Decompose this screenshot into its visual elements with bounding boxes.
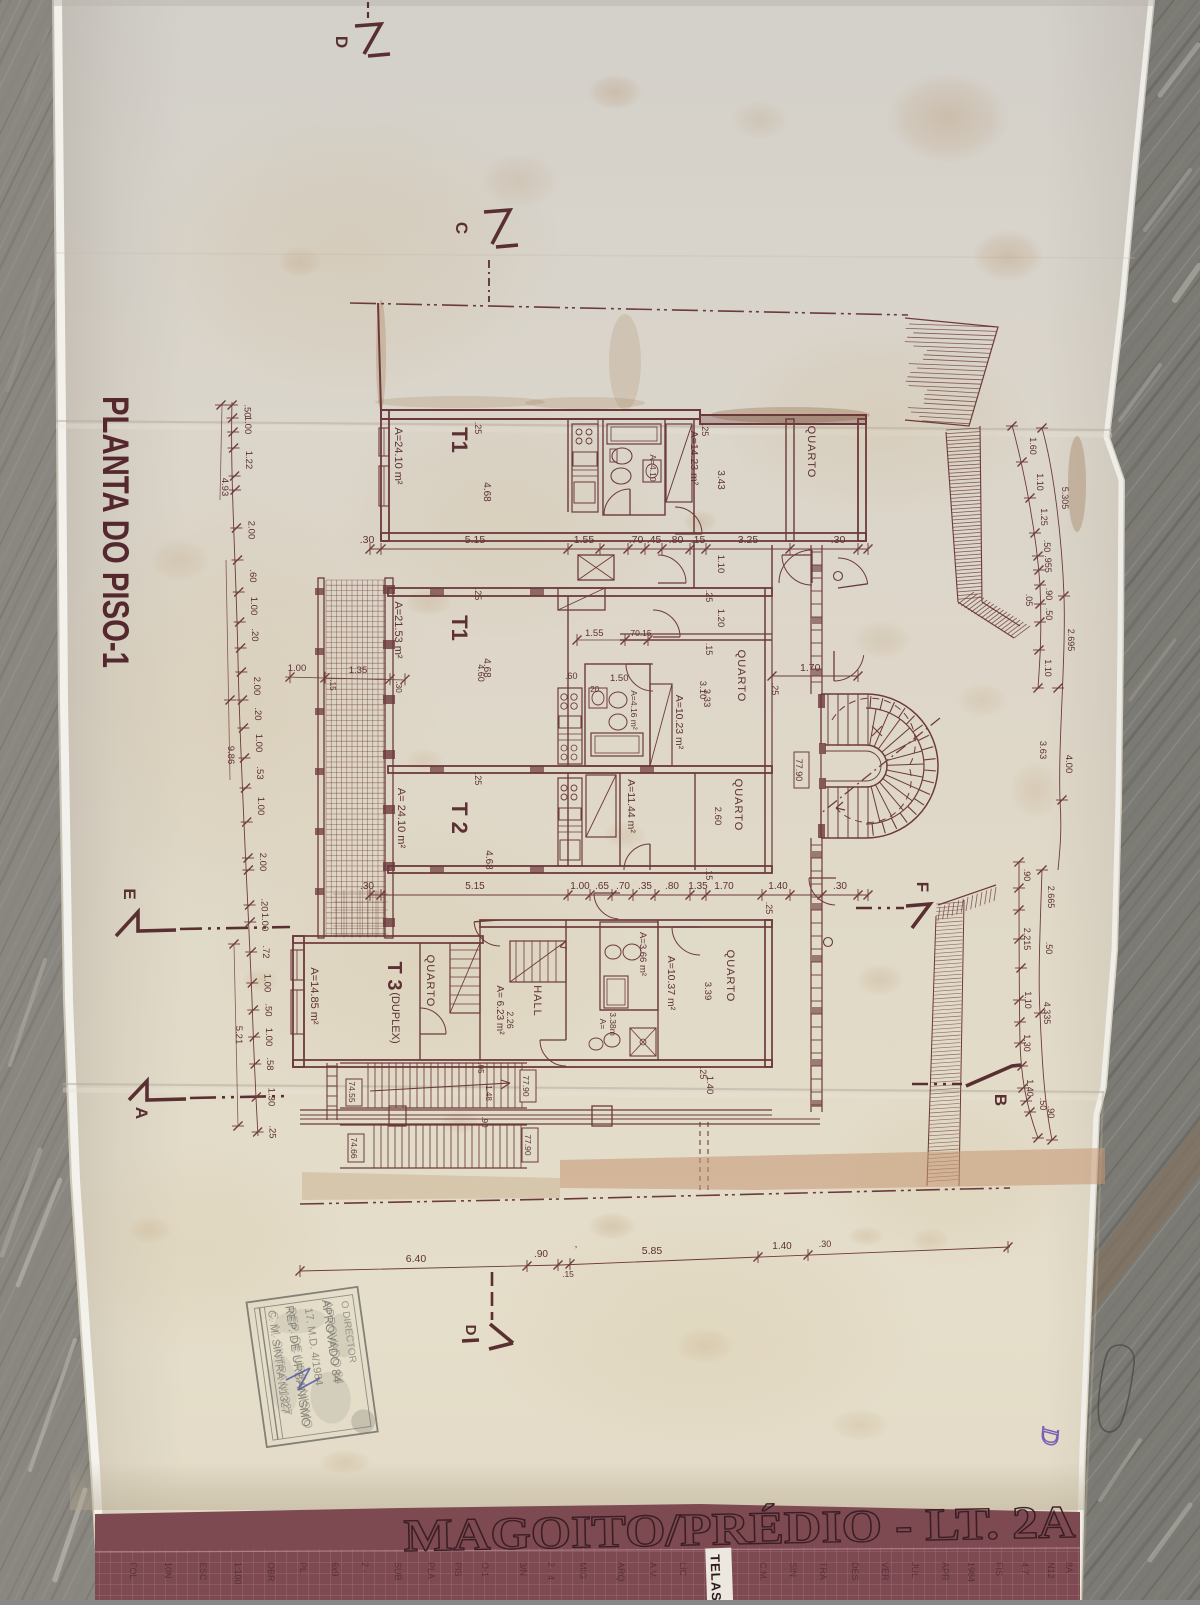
svg-text:.90: .90 [534,1249,548,1260]
svg-text:1984: 1984 [966,1562,976,1582]
svg-text:1.00: 1.00 [242,416,253,435]
svg-text:.50: .50 [262,1003,273,1016]
svg-text:.25: .25 [473,422,483,435]
svg-text:A.V.: A.V. [648,1562,658,1578]
svg-text:O-1: O-1 [480,1562,490,1577]
svg-text:1.48: 1.48 [484,1085,493,1101]
svg-text:.25: .25 [770,683,780,696]
svg-text:.90: .90 [1022,869,1032,882]
svg-text:1.00: 1.00 [288,663,307,674]
svg-text:.35: .35 [638,881,652,892]
svg-text:.955: .955 [1043,555,1053,573]
svg-text:5.305: 5.305 [1060,487,1070,510]
svg-text:2.26: 2.26 [505,1011,515,1029]
svg-text:.50: .50 [1044,942,1054,955]
svg-text:3.33: 3.33 [701,689,712,708]
svg-text:FIS: FIS [994,1562,1004,1576]
svg-text:PLA: PLA [426,1562,436,1579]
svg-text:4.7: 4.7 [1020,1562,1030,1575]
svg-text:.95: .95 [476,1062,485,1074]
svg-text:.45: .45 [647,534,662,546]
svg-text:8A: 8A [1064,1562,1074,1573]
svg-text:.20: .20 [259,898,270,911]
svg-text:HALL: HALL [531,985,543,1017]
svg-text:1.00: 1.00 [261,974,272,993]
svg-text:1.25: 1.25 [1039,508,1049,526]
svg-text:2.00: 2.00 [251,677,262,696]
svg-text:1.55: 1.55 [574,534,595,546]
svg-text:1.30: 1.30 [1022,1034,1032,1052]
svg-text:9.86: 9.86 [225,746,236,765]
svg-text:APR: APR [940,1562,950,1581]
svg-text:A=11.44 m²: A=11.44 m² [625,779,637,833]
svg-text:1.00: 1.00 [255,797,266,816]
svg-text:3.63: 3.63 [1037,741,1048,760]
svg-text:2.00: 2.00 [246,521,257,540]
svg-text:SUB: SUB [393,1562,403,1581]
svg-text:.53: .53 [254,766,265,779]
svg-text:6x9: 6x9 [330,1562,340,1577]
svg-text:.25: .25 [473,773,483,786]
svg-text:.20: .20 [588,685,600,694]
svg-text:77.90: 77.90 [523,1134,533,1156]
svg-text:1.10: 1.10 [1023,991,1033,1009]
svg-text:.25: .25 [473,588,483,601]
svg-text:.25: .25 [700,424,710,437]
svg-text:2.665: 2.665 [1046,886,1056,909]
svg-text:DES: DES [850,1562,860,1581]
svg-text:1.40: 1.40 [704,1076,715,1095]
svg-text:2.00: 2.00 [257,853,268,872]
svg-text:QUARTO: QUARTO [424,955,436,1008]
svg-text:.50: .50 [1042,540,1052,553]
svg-text:.90: .90 [480,1116,489,1128]
svg-text:4.68: 4.68 [481,482,492,502]
svg-text:3.25: 3.25 [738,534,759,546]
svg-text:T1: T1 [447,615,472,641]
svg-text:JUL: JUL [910,1562,920,1578]
svg-text:TELAS: TELAS [707,1554,724,1600]
svg-text:.30: .30 [360,534,375,546]
svg-text:A=4.10: A=4.10 [648,454,658,481]
svg-text:1.00: 1.00 [570,881,590,892]
svg-text:74.55: 74.55 [347,1081,357,1103]
svg-text:.70: .70 [629,534,644,546]
svg-text:2.215: 2.215 [1022,928,1032,951]
svg-text:.20: .20 [249,628,260,641]
svg-text:.58: .58 [264,1057,275,1070]
svg-text:C: C [452,222,471,234]
svg-text:QUARTO: QUARTO [805,426,817,479]
svg-text:LIC: LIC [678,1562,688,1577]
svg-text:A=21.53 m²: A=21.53 m² [392,601,404,659]
svg-text:1.40: 1.40 [772,1241,792,1252]
svg-text:(DUPLEX): (DUPLEX) [389,992,401,1043]
svg-text:4.00: 4.00 [1063,755,1074,774]
svg-text:3.39: 3.39 [702,982,713,1001]
svg-text:1.35: 1.35 [688,881,708,892]
svg-text:OBR: OBR [266,1562,276,1582]
svg-text:1.00: 1.00 [259,913,270,932]
svg-text:1.10: 1.10 [1043,659,1053,677]
svg-text:4.68: 4.68 [483,850,494,870]
svg-text:PIS: PIS [453,1562,463,1577]
svg-text:PLANTA DO PISO-1: PLANTA DO PISO-1 [95,396,136,668]
svg-text:.30: .30 [360,881,374,892]
svg-text:N12: N12 [1046,1562,1056,1579]
svg-text:B: B [991,1094,1010,1106]
svg-text:FOL: FOL [128,1562,138,1580]
svg-text:A=10.23 m²: A=10.23 m² [673,695,685,750]
svg-text:.25: .25 [267,1125,278,1138]
svg-text:1.10: 1.10 [1035,473,1045,491]
svg-text:.70.15: .70.15 [628,628,652,638]
svg-text:1.40: 1.40 [768,881,788,892]
svg-text:A=4.16 m²: A=4.16 m² [629,690,639,730]
svg-text:T 3: T 3 [383,962,405,991]
svg-text:T 2: T 2 [447,802,472,834]
svg-text:1.10: 1.10 [715,555,726,574]
svg-text:5.85: 5.85 [642,1245,663,1257]
svg-text:QUARTO: QUARTO [724,950,736,1003]
svg-text:1.50: 1.50 [610,673,629,684]
svg-text:’: ’ [575,1245,577,1256]
svg-text:.30: .30 [833,881,847,892]
svg-text:1.00: 1.00 [253,734,264,753]
svg-text:.25: .25 [704,590,714,603]
svg-text:3.43: 3.43 [715,470,726,490]
svg-text:1:100: 1:100 [233,1562,243,1585]
svg-text:.80: .80 [669,534,684,546]
svg-text:PL.: PL. [298,1562,308,1576]
svg-text:.25: .25 [764,902,774,915]
svg-text:SIN: SIN [788,1562,798,1577]
svg-text:.50: .50 [1044,608,1054,621]
svg-text:.72: .72 [260,945,271,958]
svg-text:VER: VER [880,1562,890,1581]
svg-text:4.60: 4.60 [476,664,486,682]
svg-text:.15: .15 [704,868,714,881]
svg-text:.80: .80 [665,881,679,892]
svg-text:2 -: 2 - [360,1562,370,1573]
svg-text:1.55: 1.55 [585,628,604,639]
svg-text:74.66: 74.66 [349,1137,359,1159]
svg-text:A=: A= [598,1019,608,1030]
svg-text:4.335: 4.335 [1042,1002,1052,1025]
svg-text:.30: .30 [831,534,846,546]
svg-text:3/N: 3/N [518,1562,528,1576]
svg-text:A=3.66 m²: A=3.66 m² [637,932,648,976]
svg-text:1.35: 1.35 [349,665,368,676]
svg-text:.15: .15 [328,679,337,691]
svg-text:QUARTO: QUARTO [735,650,747,703]
svg-text:2.60: 2.60 [712,807,723,826]
svg-text:D: D [332,36,351,48]
svg-text:1.40: 1.40 [1025,1079,1035,1097]
svg-text:2.695: 2.695 [1066,629,1076,652]
svg-text:.70: .70 [616,881,630,892]
svg-text:A= 6.23 m²: A= 6.23 m² [494,985,505,1035]
svg-text:C.M.: C.M. [758,1562,768,1581]
svg-text:.60: .60 [247,569,258,582]
svg-text:77.90: 77.90 [794,759,804,782]
svg-text:.60: .60 [565,671,578,681]
svg-text:1.30: 1.30 [265,1088,276,1107]
svg-text:A=14.23 m²: A=14.23 m² [688,431,700,486]
svg-text:.90: .90 [1044,588,1054,601]
svg-text:5.15: 5.15 [465,881,485,892]
svg-text:.30: .30 [394,681,404,693]
svg-text:1.60: 1.60 [1028,437,1038,455]
svg-text:.05: .05 [1024,594,1034,607]
svg-text:3.38m: 3.38m [608,1012,618,1036]
svg-text:TRA: TRA [818,1562,828,1580]
svg-text:10N: 10N [163,1562,173,1579]
svg-text:ARQ: ARQ [616,1562,626,1582]
svg-text:1.70: 1.70 [714,881,734,892]
svg-text:QUARTO: QUARTO [732,779,744,832]
svg-text:MIG: MIG [578,1562,588,1579]
svg-text:A=10.37 m²: A=10.37 m² [665,956,677,1011]
svg-text:A=24.10 m²: A=24.10 m² [392,427,404,485]
svg-text:D: D [462,1325,479,1336]
svg-text:D: D [1036,1425,1063,1446]
svg-text:.20: .20 [252,707,263,720]
svg-text:.15: .15 [562,1269,574,1279]
svg-text:1.00: 1.00 [248,597,259,616]
svg-text:.65: .65 [595,881,609,892]
svg-text:5.21: 5.21 [233,1026,244,1045]
svg-text:6.40: 6.40 [406,1253,427,1265]
svg-text:1.22: 1.22 [243,451,254,470]
svg-text:F: F [913,882,932,892]
svg-text:A= 24.10 m²: A= 24.10 m² [395,788,407,849]
svg-text:1.20: 1.20 [715,609,726,628]
svg-text:T1: T1 [447,427,472,453]
svg-text:A=14.85 m²: A=14.85 m² [308,967,320,1025]
svg-text:.15: .15 [704,643,714,656]
svg-text:77.90: 77.90 [521,1075,531,1097]
svg-text:5.15: 5.15 [465,534,486,546]
svg-text:.15: .15 [691,534,706,546]
svg-text:A: A [132,1107,151,1119]
svg-text:2 - 4: 2 - 4 [546,1562,556,1580]
svg-text:.30: .30 [819,1239,832,1249]
svg-text:1.00: 1.00 [263,1028,274,1047]
svg-text:ESC: ESC [198,1562,208,1581]
svg-text:E: E [120,888,139,899]
